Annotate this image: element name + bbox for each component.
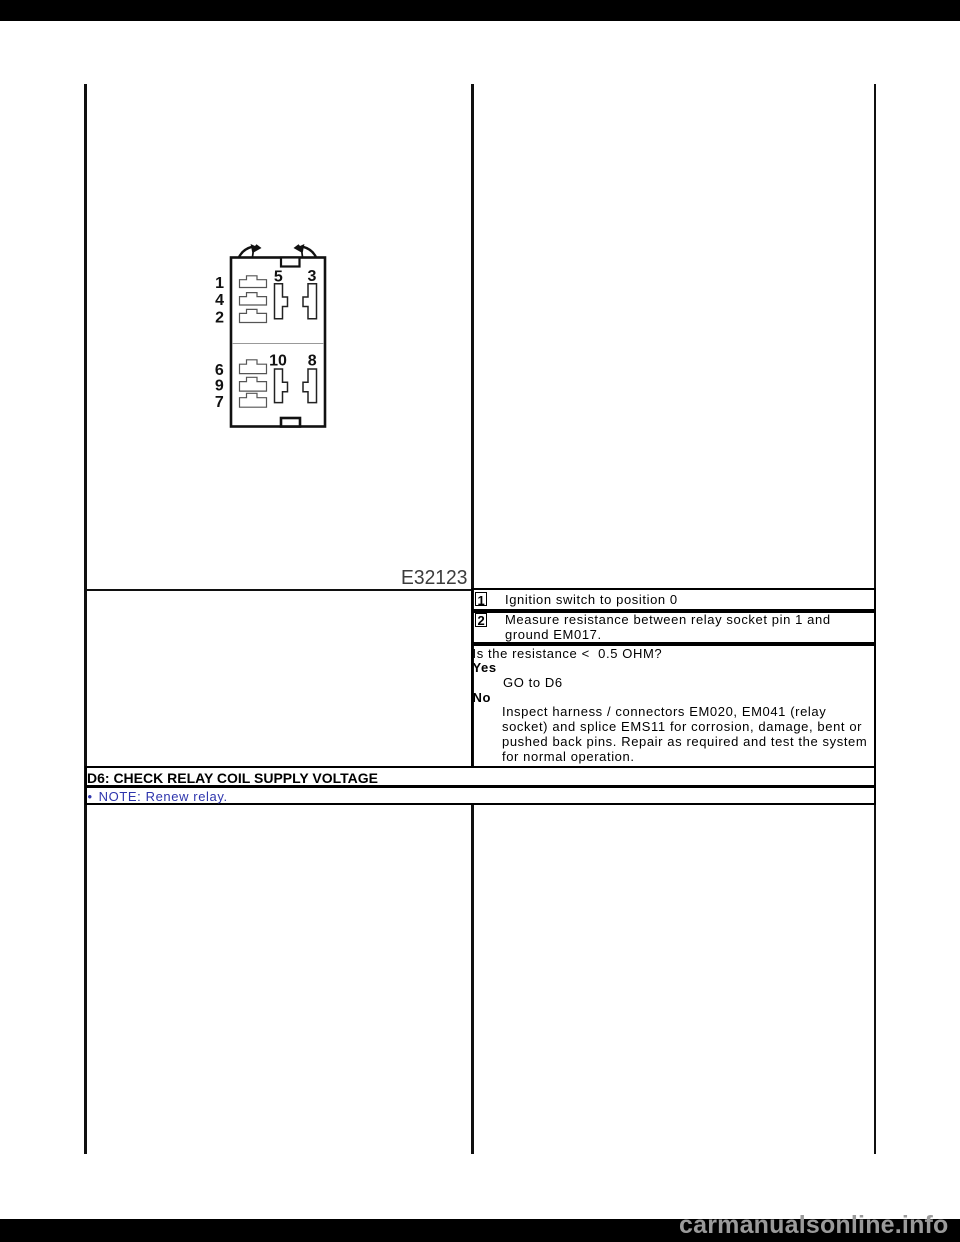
svg-text:1: 1 xyxy=(215,275,224,292)
svg-text:8: 8 xyxy=(308,353,317,370)
svg-text:7: 7 xyxy=(215,394,224,411)
svg-text:10: 10 xyxy=(269,353,287,370)
svg-text:5: 5 xyxy=(274,269,283,286)
svg-text:9: 9 xyxy=(215,377,224,394)
svg-text:2: 2 xyxy=(215,310,224,327)
svg-text:3: 3 xyxy=(307,268,316,285)
svg-text:4: 4 xyxy=(215,292,224,309)
